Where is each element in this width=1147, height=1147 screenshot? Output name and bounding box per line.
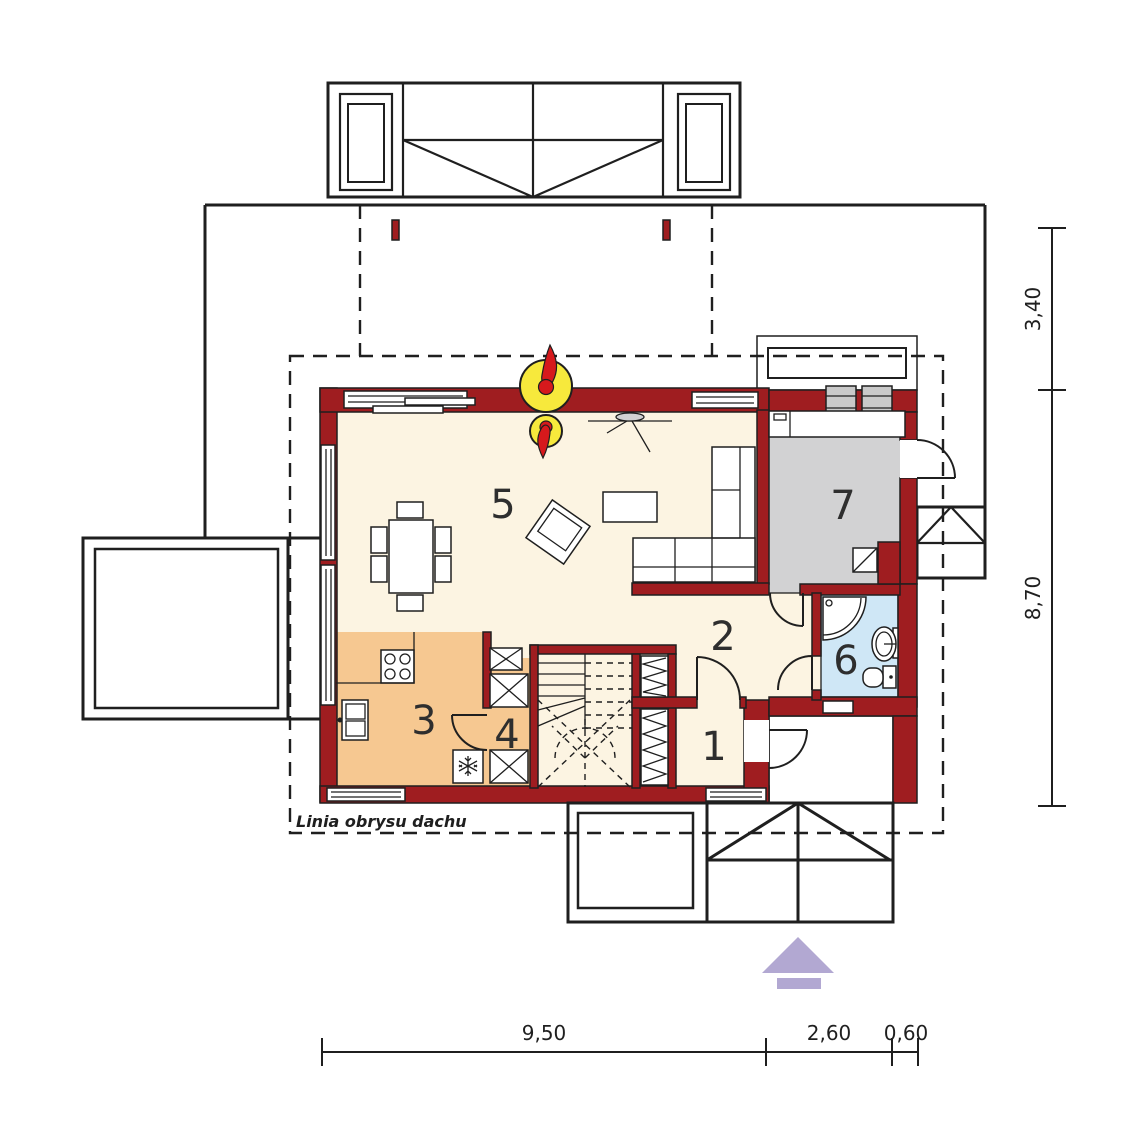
dim-right-3-40: 3,40 (1021, 287, 1045, 332)
dim-bottom-9-50: 9,50 (522, 1021, 567, 1045)
room-label-4: 4 (494, 712, 519, 758)
room-label-1: 1 (701, 724, 726, 770)
terrace (83, 538, 288, 719)
window-top-sofa (692, 392, 758, 408)
fridge-icon (453, 750, 483, 783)
toilet-icon (863, 666, 896, 688)
room-label-5: 5 (490, 482, 515, 528)
door-gap-porch (744, 720, 769, 762)
entrance-canopy (568, 803, 893, 922)
room-label-6: 6 (833, 638, 858, 684)
roof-outline-label: Linia obrysu dachu (296, 812, 467, 831)
door-gap-utility (900, 440, 917, 478)
dim-right-8-70: 8,70 (1021, 576, 1045, 621)
room-label-3: 3 (411, 698, 436, 744)
wall-under-sofa (632, 583, 769, 595)
dim-bottom-2-60: 2,60 (807, 1021, 852, 1045)
side-chimney-block (917, 507, 985, 578)
roof-vent-right (663, 220, 670, 240)
coffee-table (603, 492, 657, 522)
sideboard-2 (373, 406, 443, 413)
dim-bottom-0-60: 0,60 (884, 1021, 929, 1045)
stove-icon (381, 650, 414, 683)
sideboard-1 (405, 398, 475, 405)
wall-living-utility (757, 410, 769, 584)
window-left-living (321, 445, 335, 560)
window-bay (757, 336, 917, 390)
front-door-glazing (706, 788, 766, 801)
wall-stairs-top (530, 645, 676, 654)
room-label-7: 7 (830, 483, 855, 529)
window-left-kitchen (321, 565, 335, 705)
floor-plan: 9,50 2,60 0,60 3,40 8,70 5 7 2 6 1 3 4 L… (0, 0, 1147, 1147)
dormer (328, 83, 740, 197)
window-bottom-kitchen (327, 788, 405, 801)
washbasin-icon (872, 627, 898, 661)
roof-vent-left (392, 220, 399, 240)
sink-icon (338, 700, 369, 740)
north-arrow-icon (762, 937, 834, 989)
door-utility-exterior (917, 440, 955, 478)
closets (641, 656, 668, 785)
window-bath (823, 701, 853, 713)
room-label-2: 2 (710, 614, 735, 660)
